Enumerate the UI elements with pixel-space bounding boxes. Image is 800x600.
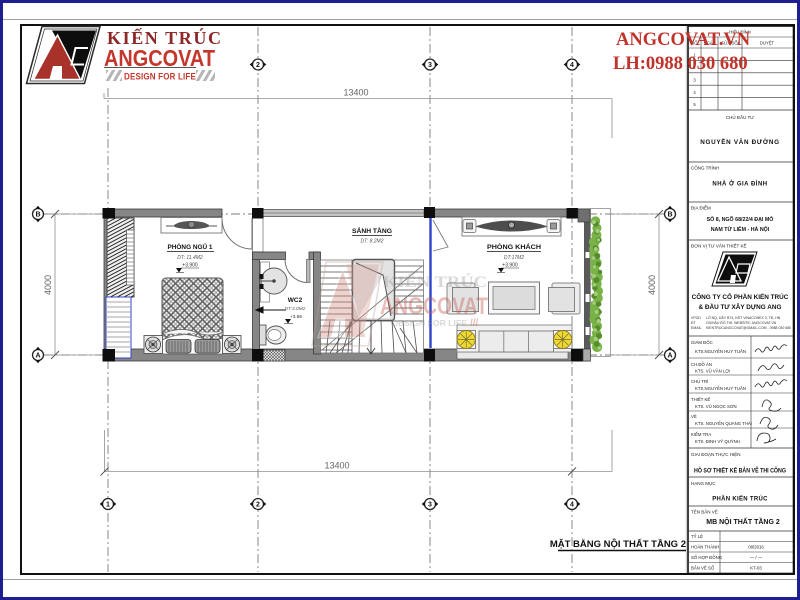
svg-text:DESIGN FOR LIFE: DESIGN FOR LIFE bbox=[392, 318, 467, 328]
svg-text:///: /// bbox=[470, 318, 479, 329]
svg-text:ANGCOVAT.VN: ANGCOVAT.VN bbox=[616, 30, 751, 50]
svg-text:2: 2 bbox=[256, 62, 260, 69]
svg-text:TỶ LỆ: TỶ LỆ bbox=[691, 534, 703, 539]
svg-text:13400: 13400 bbox=[343, 88, 368, 98]
svg-text:PHÒNG NGỦ 1: PHÒNG NGỦ 1 bbox=[168, 242, 213, 251]
svg-text:DUYỆT: DUYỆT bbox=[760, 41, 775, 46]
svg-text:NHÀ Ở GIA ĐÌNH: NHÀ Ở GIA ĐÌNH bbox=[712, 180, 767, 188]
svg-text:KIENTRUCANGCOVAT@GMAIL.COM - 0: KIENTRUCANGCOVAT@GMAIL.COM - 0988 030 68… bbox=[706, 326, 791, 330]
svg-text:BẢN VẼ SỐ: BẢN VẼ SỐ bbox=[691, 566, 715, 571]
svg-text:DESIGN FOR LIFE: DESIGN FOR LIFE bbox=[124, 72, 196, 82]
svg-text:GIÁM ĐỐC: GIÁM ĐỐC bbox=[691, 340, 713, 345]
svg-text:DT:17M2: DT:17M2 bbox=[504, 255, 524, 261]
svg-text:DT: 8.2M2: DT: 8.2M2 bbox=[361, 239, 384, 245]
svg-text:+3.86: +3.86 bbox=[290, 314, 302, 320]
svg-text:KIỂM TRA: KIỂM TRA bbox=[691, 432, 711, 437]
svg-text:PHẦN KIẾN TRÚC: PHẦN KIẾN TRÚC bbox=[712, 496, 768, 503]
svg-text:KTS. NGUYỄN QUANG THÁI: KTS. NGUYỄN QUANG THÁI bbox=[695, 421, 752, 426]
svg-text:B: B bbox=[35, 212, 40, 219]
svg-text:ĐỊA ĐIỂM: ĐỊA ĐIỂM bbox=[691, 205, 711, 211]
svg-text:ĐƠN VỊ TƯ VẤN THIẾT KẾ: ĐƠN VỊ TƯ VẤN THIẾT KẾ bbox=[691, 243, 746, 249]
svg-text:CHỦ TRÌ: CHỦ TRÌ bbox=[691, 379, 708, 384]
svg-text:HỒ SƠ THIẾT KẾ BẢN VẼ THI CÔNG: HỒ SƠ THIẾT KẾ BẢN VẼ THI CÔNG bbox=[694, 467, 786, 475]
svg-text:NAM TỪ LIÊM - HÀ NỘI: NAM TỪ LIÊM - HÀ NỘI bbox=[711, 225, 770, 233]
svg-text:LÔ NQ, DÃY BT4, KĐT VINACONEX: LÔ NQ, DÃY BT4, KĐT VINACONEX 3, TĐ, HN bbox=[706, 315, 781, 320]
svg-text:KTS. VŨ NGỌC SƠN: KTS. VŨ NGỌC SƠN bbox=[695, 404, 737, 409]
svg-text:4000: 4000 bbox=[647, 275, 657, 295]
svg-text:+3.900: +3.900 bbox=[502, 263, 518, 269]
svg-text:VẼ: VẼ bbox=[691, 414, 697, 419]
svg-text:DT:3.0M2: DT:3.0M2 bbox=[285, 306, 306, 312]
svg-text:PHÒNG KHÁCH: PHÒNG KHÁCH bbox=[487, 242, 541, 251]
svg-text:GIAI ĐOẠN THỰC HIỆN: GIAI ĐOẠN THỰC HIỆN bbox=[691, 450, 741, 457]
svg-text:1: 1 bbox=[106, 502, 110, 509]
svg-text:KTS. VŨ VĂN LỢI: KTS. VŨ VĂN LỢI bbox=[695, 369, 730, 374]
svg-text:3: 3 bbox=[428, 62, 432, 69]
svg-text:4000: 4000 bbox=[43, 275, 53, 295]
svg-text:KT-03: KT-03 bbox=[750, 566, 762, 571]
svg-text:SỐ 8, NGÕ 68/22/4 ĐẠI MỖ: SỐ 8, NGÕ 68/22/4 ĐẠI MỖ bbox=[707, 216, 774, 223]
svg-text:TÊN BẢN VẼ: TÊN BẢN VẼ bbox=[691, 508, 718, 515]
svg-text:B: B bbox=[667, 212, 672, 219]
svg-text:HẠNG MỤC: HẠNG MỤC bbox=[691, 481, 716, 486]
svg-text:MẶT BẰNG NỘI THẤT TẦNG 2: MẶT BẰNG NỘI THẤT TẦNG 2 bbox=[550, 538, 686, 550]
svg-text:4: 4 bbox=[570, 502, 574, 509]
svg-text:KIẾN TRÚC: KIẾN TRÚC bbox=[383, 272, 487, 291]
svg-text:CN/HẬU ĐỒ THỊ: WEBSITE: ANGCOV: CN/HẬU ĐỒ THỊ: WEBSITE: ANGCOVAT.VN bbox=[706, 320, 777, 325]
svg-text:ANGCOVAT: ANGCOVAT bbox=[380, 293, 488, 320]
svg-text:KTS.NGUYỄN HUY TUẤN: KTS.NGUYỄN HUY TUẤN bbox=[695, 386, 746, 391]
svg-text:A: A bbox=[667, 353, 672, 360]
svg-text:CHỦ ĐẦU TƯ: CHỦ ĐẦU TƯ bbox=[726, 114, 754, 120]
svg-text:NGUYỄN VĂN ĐƯỜNG: NGUYỄN VĂN ĐƯỜNG bbox=[700, 137, 780, 146]
svg-text:4: 4 bbox=[570, 62, 574, 69]
svg-text:CH.ĐỒ ÁN: CH.ĐỒ ÁN bbox=[691, 362, 712, 367]
svg-text:3: 3 bbox=[428, 502, 432, 509]
svg-text:HOÀN THÀNH: HOÀN THÀNH bbox=[691, 545, 719, 550]
svg-text:CÔNG TRÌNH: CÔNG TRÌNH bbox=[691, 165, 719, 171]
svg-text:2: 2 bbox=[256, 502, 260, 509]
svg-text:KTS.NGUYỄN HUY TUẤN: KTS.NGUYỄN HUY TUẤN bbox=[695, 349, 746, 354]
svg-text:KTS. ĐINH VỸ QUỲNH: KTS. ĐINH VỸ QUỲNH bbox=[695, 439, 740, 444]
svg-text:SỐ HỢP ĐỒNG: SỐ HỢP ĐỒNG bbox=[691, 555, 723, 560]
svg-text:A: A bbox=[35, 353, 40, 360]
svg-text:— / —: — / — bbox=[750, 555, 763, 560]
svg-text:13400: 13400 bbox=[324, 461, 349, 471]
svg-text:THIẾT KẾ: THIẾT KẾ bbox=[691, 397, 710, 402]
svg-text:+3.900: +3.900 bbox=[182, 263, 198, 269]
svg-text:VPGD: VPGD bbox=[691, 316, 701, 320]
svg-text:LH:0988 030 680: LH:0988 030 680 bbox=[613, 54, 748, 74]
svg-text:DT: 11.4M2: DT: 11.4M2 bbox=[177, 255, 203, 261]
svg-text:08/2016: 08/2016 bbox=[748, 545, 764, 550]
svg-text:WC2: WC2 bbox=[288, 297, 303, 304]
svg-text:EMAIL: EMAIL bbox=[691, 326, 702, 330]
